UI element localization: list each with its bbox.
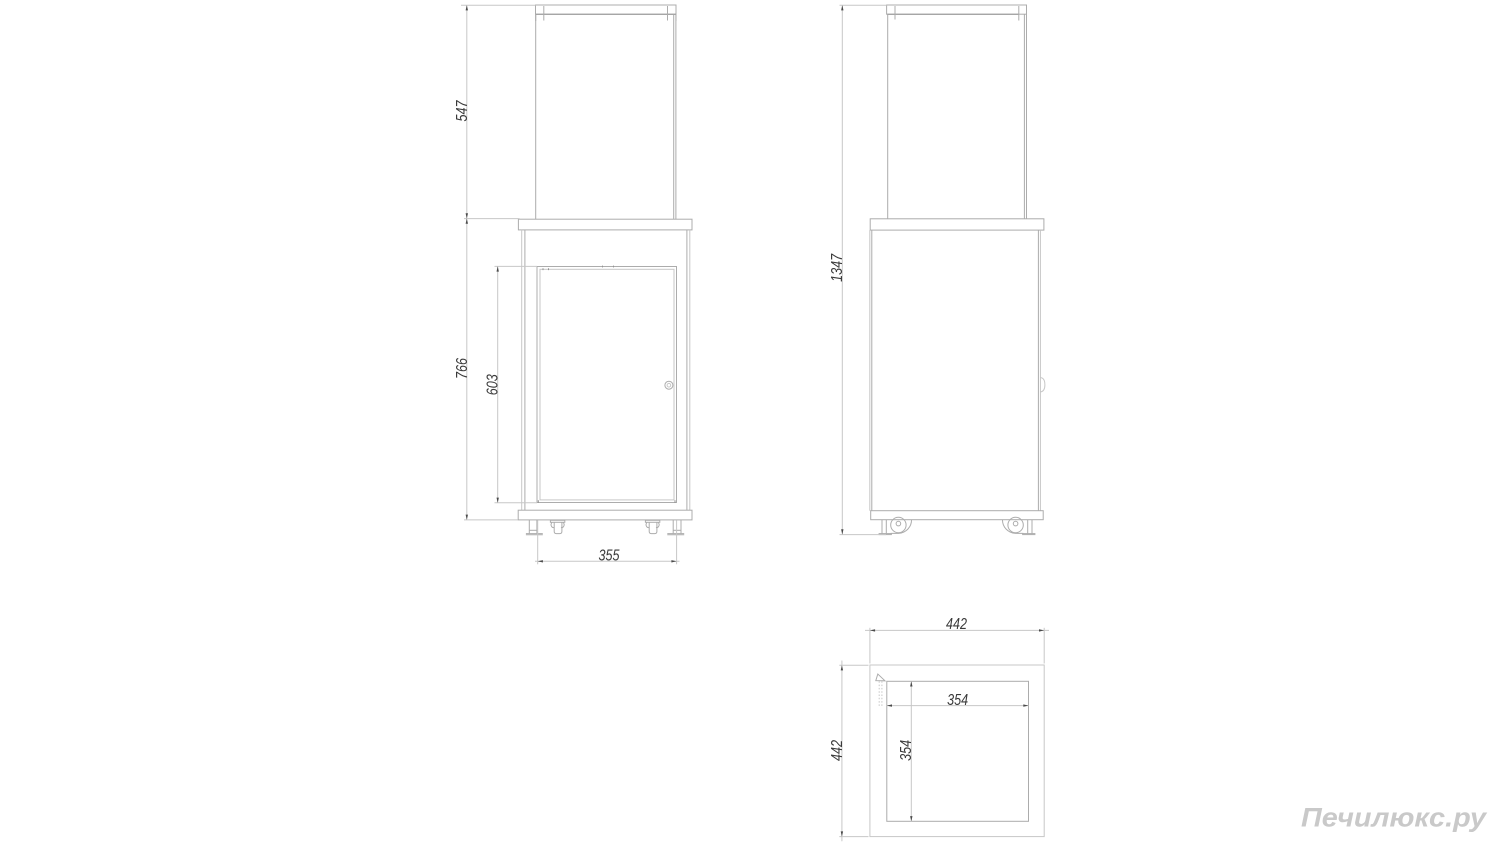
- svg-text:Печилюкс.ру: Печилюкс.ру: [1301, 803, 1488, 833]
- svg-text:354: 354: [898, 740, 915, 761]
- svg-text:442: 442: [946, 616, 967, 633]
- svg-text:1347: 1347: [829, 253, 846, 282]
- svg-text:442: 442: [829, 740, 846, 761]
- svg-text:354: 354: [947, 692, 968, 709]
- svg-text:603: 603: [485, 374, 502, 395]
- svg-text:547: 547: [454, 100, 471, 122]
- svg-text:355: 355: [599, 547, 620, 564]
- svg-text:766: 766: [454, 358, 471, 379]
